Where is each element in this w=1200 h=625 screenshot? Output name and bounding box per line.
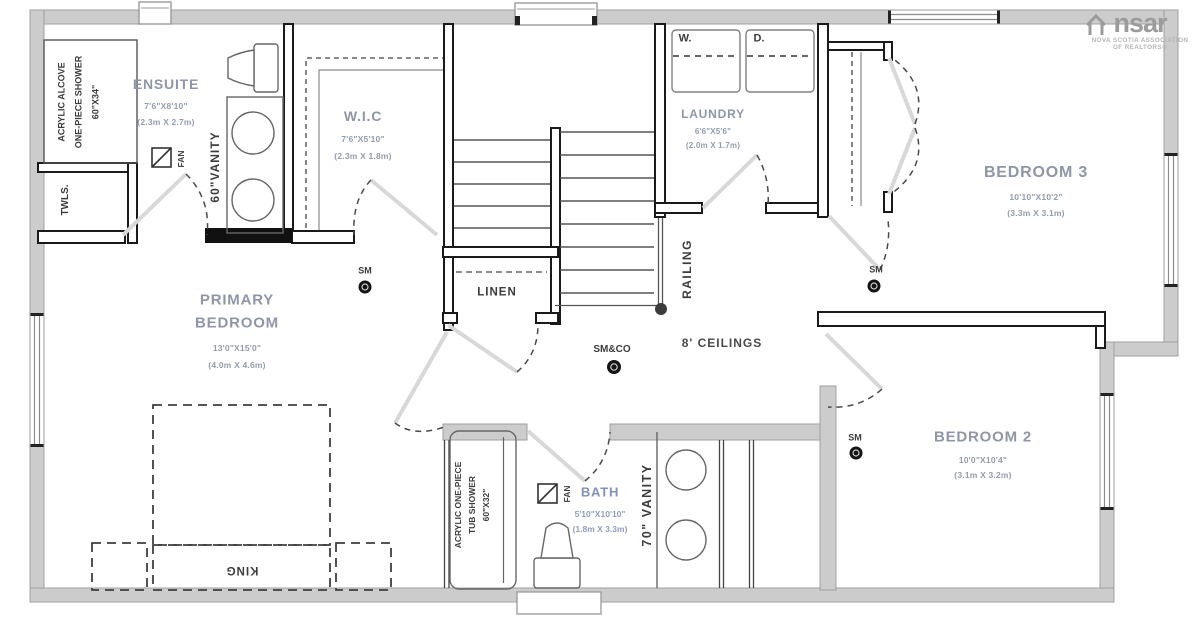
window-bedroom3-top-icon <box>888 11 1000 24</box>
room-label-bath: BATH <box>581 486 619 499</box>
room-dims-bath-metric: (1.8m X 3.3m) <box>573 525 628 534</box>
window-bedroom3-right-icon <box>1165 153 1178 287</box>
ensuite-shower-text-3: 60"X34" <box>92 85 101 120</box>
window-primary-left-icon <box>31 313 44 447</box>
room-dims-laundry-imperial: 6'6"X5'6" <box>695 128 731 136</box>
door-primary <box>395 332 447 423</box>
window-stair-bump-icon <box>515 3 597 25</box>
ensuite-shower-text-1: ACRYLIC ALCOVE <box>58 62 67 141</box>
smoke-detector-label: SM <box>869 266 883 275</box>
towels-label: TWLS. <box>61 184 71 215</box>
door-laundry <box>703 155 757 208</box>
king-bed-label: KING <box>226 563 259 575</box>
room-label-laundry: LAUNDRY <box>681 108 745 120</box>
door-linen <box>448 325 517 372</box>
room-label-ensuite: ENSUITE <box>133 77 199 91</box>
laundry-appliances <box>672 30 814 92</box>
tub-shower-text-3: 60"X32" <box>482 489 491 522</box>
smoke-co-detector-label: SM&CO <box>593 345 630 355</box>
toilet-tank-icon <box>254 44 278 92</box>
room-dims-ensuite-imperial: 7'6"X8'10" <box>144 102 187 111</box>
sink-icon <box>232 179 274 221</box>
fan-label-bath: FAN <box>563 486 572 503</box>
interior-walls <box>38 24 1105 348</box>
nsar-logo-text-right: ar <box>1143 13 1167 35</box>
floor-plan: ENSUITE 7'6"X8'10" (2.3m X 2.7m) W.I.C 7… <box>0 0 1200 625</box>
door-bedroom3 <box>829 216 880 270</box>
house-icon <box>1085 13 1107 37</box>
room-label-primary-line1: PRIMARY <box>200 293 274 308</box>
room-dims-laundry-metric: (2.0m X 1.7m) <box>686 142 740 150</box>
room-dims-primary-metric: (4.0m X 4.6m) <box>208 361 265 370</box>
nightstand-icon <box>336 543 391 590</box>
king-bed <box>92 405 391 590</box>
bed-icon <box>153 405 330 545</box>
nsar-tagline-2: OF REALTORS® <box>1086 44 1194 52</box>
door-closet-b3-top <box>889 58 915 124</box>
washer-label: W. <box>679 34 692 45</box>
ensuite-shower-text-2: ONE-PIECE SHOWER <box>75 56 84 149</box>
nightstand-icon <box>92 543 147 590</box>
door-wic <box>371 180 437 235</box>
door-bath <box>528 431 585 481</box>
fan-icon <box>538 484 557 503</box>
ceiling-note: 8' CEILINGS <box>682 337 763 349</box>
wall-solid-header <box>205 228 292 243</box>
room-label-bedroom2: BEDROOM 2 <box>934 430 1032 445</box>
bath-vanity-label: 70" VANITY <box>641 463 654 546</box>
railing-label: RAILING <box>681 239 693 299</box>
sink-icon <box>666 520 706 560</box>
window-bedroom2-right-icon <box>1101 393 1114 510</box>
tub-shower-text-1: ACRYLIC ONE-PIECE <box>454 462 463 549</box>
room-label-bedroom3: BEDROOM 3 <box>984 165 1088 181</box>
door-bedroom2 <box>826 334 882 389</box>
door-closet-b3-bottom <box>889 128 915 194</box>
room-label-wic: W.I.C <box>344 109 382 123</box>
linen-label: LINEN <box>477 287 517 299</box>
ensuite-vanity-label: 60"VANITY <box>209 131 221 202</box>
nsar-logo: nsar NOVA SCOTIA ASSOCIATION OF REALTORS… <box>1086 13 1194 52</box>
room-dims-bedroom3-metric: (3.3m X 3.1m) <box>1007 209 1064 218</box>
smoke-co-detector-icon <box>607 360 621 374</box>
fan-icon <box>152 148 171 167</box>
newel-post-icon <box>655 303 667 315</box>
room-dims-bedroom2-imperial: 10'0"X10'4" <box>959 456 1007 465</box>
toilet-tank-icon <box>534 558 580 588</box>
room-dims-ensuite-metric: (2.3m X 2.7m) <box>137 118 194 127</box>
nsar-logo-text-left: ns <box>1113 13 1143 35</box>
toilet-bowl-icon <box>541 523 573 558</box>
room-dims-bedroom2-metric: (3.1m X 3.2m) <box>954 471 1011 480</box>
toilet-bowl-icon <box>228 50 254 86</box>
sink-icon <box>232 112 274 154</box>
room-dims-primary-imperial: 13'0"X15'0" <box>213 344 261 353</box>
stair-railing <box>555 218 667 315</box>
room-dims-bath-imperial: 5'10"X10'10" <box>575 510 626 519</box>
room-dims-wic-imperial: 7'6"X5'10" <box>341 135 384 144</box>
fan-label-ensuite: FAN <box>177 151 186 168</box>
sink-icon <box>666 450 706 490</box>
bath-fixtures <box>450 431 706 614</box>
smoke-detector-icon <box>359 281 372 294</box>
smoke-detector-icon <box>868 280 881 293</box>
room-dims-bedroom3-imperial: 10'10"X10'2" <box>1009 193 1062 202</box>
room-dims-wic-metric: (2.3m X 1.8m) <box>334 152 391 161</box>
smoke-detector-icon <box>850 447 863 460</box>
room-label-primary-line2: BEDROOM <box>195 316 279 331</box>
window-ensuite-bump-icon <box>139 2 171 24</box>
tub-shower-text-2: TUB SHOWER <box>468 476 477 534</box>
dryer-label: D. <box>754 34 765 45</box>
smoke-detector-label: SM <box>848 434 862 443</box>
smoke-detector-label: SM <box>358 267 372 276</box>
wall-bump <box>517 592 601 614</box>
